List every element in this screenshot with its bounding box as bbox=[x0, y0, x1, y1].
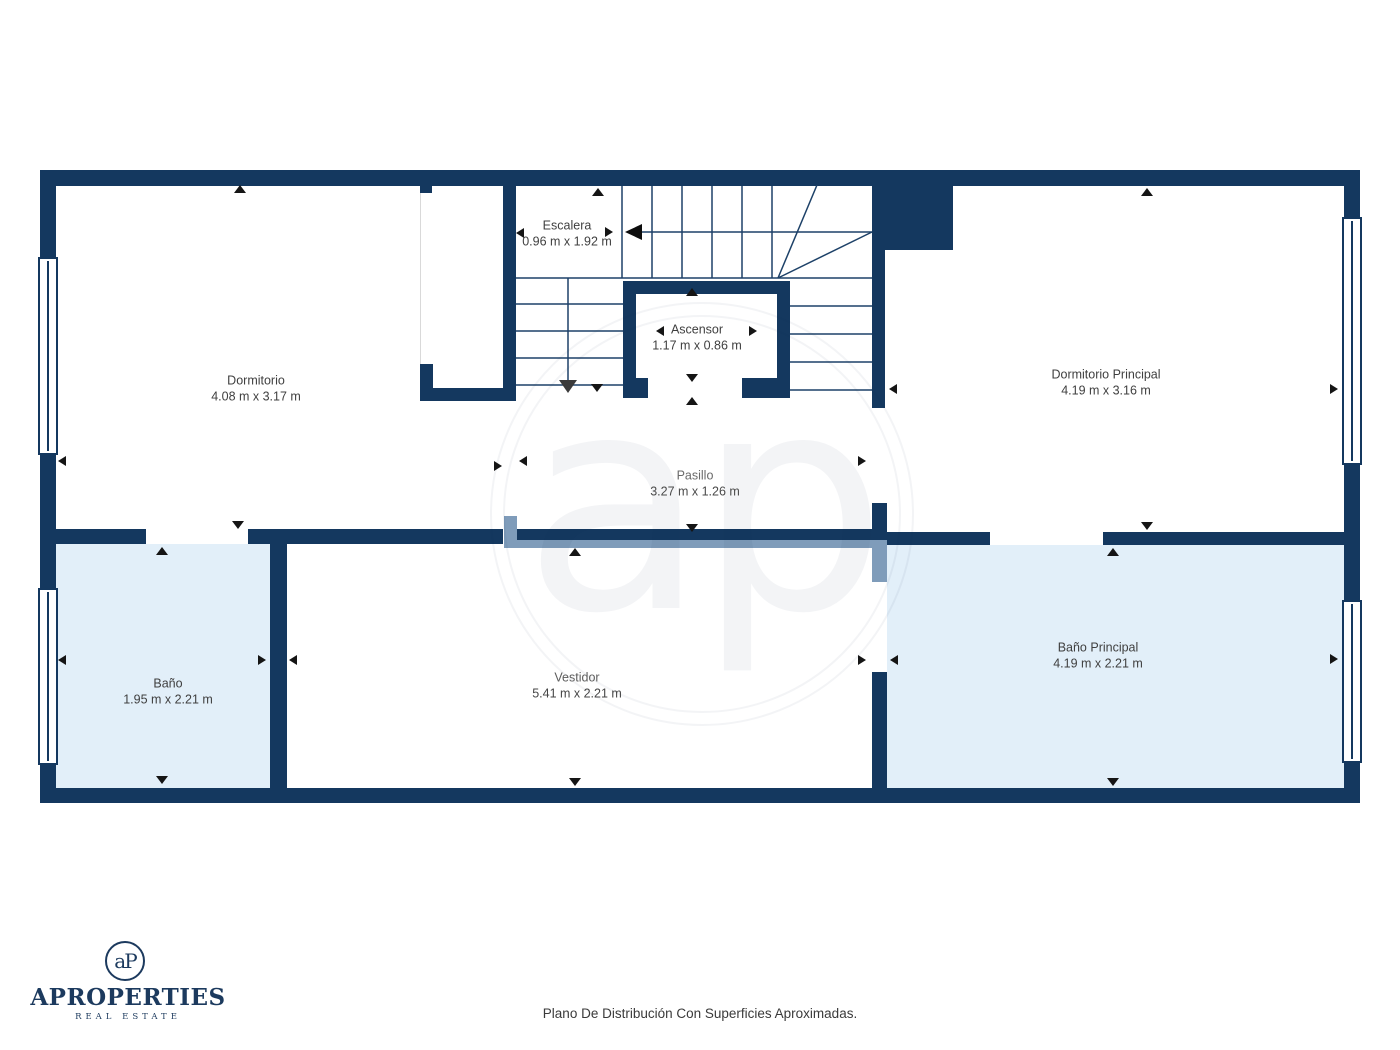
dimension-arrow bbox=[258, 655, 266, 665]
closet-edge-line bbox=[420, 193, 421, 364]
room-dims: 4.08 m x 3.17 m bbox=[211, 389, 301, 405]
wall-bathroom-right bbox=[270, 529, 287, 788]
wall-segment bbox=[420, 388, 516, 401]
room-name: Escalera bbox=[522, 219, 612, 235]
wall-pillar-block bbox=[872, 186, 953, 250]
room-label-pasillo: Pasillo 3.27 m x 1.26 m bbox=[650, 469, 740, 500]
window bbox=[1342, 600, 1362, 763]
wall-segment bbox=[40, 529, 146, 544]
room-label-bano-principal: Baño Principal 4.19 m x 2.21 m bbox=[1053, 641, 1143, 672]
dimension-arrow bbox=[1330, 654, 1338, 664]
dimension-arrow bbox=[1141, 522, 1153, 530]
dimension-arrow bbox=[516, 228, 524, 238]
dimension-arrow bbox=[234, 185, 246, 193]
dimension-arrow bbox=[1330, 384, 1338, 394]
dimension-arrow bbox=[656, 326, 664, 336]
room-label-dormitorio-principal: Dormitorio Principal 4.19 m x 3.16 m bbox=[1051, 368, 1160, 399]
room-name: Baño bbox=[123, 677, 213, 693]
bathroom-floor-fill bbox=[56, 544, 270, 788]
window bbox=[38, 257, 58, 455]
dimension-arrow bbox=[749, 326, 757, 336]
window bbox=[38, 588, 58, 765]
window bbox=[1342, 217, 1362, 465]
dimension-arrow bbox=[605, 227, 613, 237]
room-dims: 4.19 m x 2.21 m bbox=[1053, 656, 1143, 672]
room-label-escalera: Escalera 0.96 m x 1.92 m bbox=[522, 219, 612, 250]
room-name: Baño Principal bbox=[1053, 641, 1143, 657]
dimension-arrow bbox=[858, 655, 866, 665]
room-name: Pasillo bbox=[650, 469, 740, 485]
wall-segment bbox=[1103, 532, 1344, 545]
room-dims: 1.17 m x 0.86 m bbox=[652, 338, 742, 354]
dimension-arrow bbox=[156, 547, 168, 555]
wall-stub bbox=[420, 186, 432, 193]
dimension-arrow bbox=[890, 655, 898, 665]
room-dims: 4.19 m x 3.16 m bbox=[1051, 383, 1160, 399]
plan-caption: Plano De Distribución Con Superficies Ap… bbox=[0, 1006, 1400, 1021]
dimension-arrow bbox=[58, 655, 66, 665]
dimension-arrow bbox=[156, 776, 168, 784]
dimension-arrow bbox=[232, 521, 244, 529]
room-dims: 3.27 m x 1.26 m bbox=[650, 484, 740, 500]
dimension-arrow bbox=[569, 778, 581, 786]
dimension-arrow bbox=[858, 456, 866, 466]
agency-monogram: aP bbox=[114, 949, 135, 973]
agency-logo-icon: aP bbox=[105, 941, 145, 981]
room-name: Vestidor bbox=[532, 671, 622, 687]
dimension-arrow bbox=[519, 456, 527, 466]
dimension-arrow bbox=[58, 456, 66, 466]
room-dims: 0.96 m x 1.92 m bbox=[522, 234, 612, 250]
dimension-arrow bbox=[686, 374, 698, 382]
dimension-arrow bbox=[591, 384, 603, 392]
wall-segment bbox=[872, 672, 887, 788]
watermark-monogram: ap bbox=[523, 355, 877, 655]
room-name: Dormitorio bbox=[211, 374, 301, 390]
room-name: Ascensor bbox=[652, 323, 742, 339]
room-name: Dormitorio Principal bbox=[1051, 368, 1160, 384]
stair-direction-arrow bbox=[625, 224, 642, 240]
dimension-arrow bbox=[1141, 188, 1153, 196]
room-dims: 5.41 m x 2.21 m bbox=[532, 686, 622, 702]
dimension-arrow bbox=[289, 655, 297, 665]
dimension-arrow bbox=[1107, 778, 1119, 786]
dimension-arrow bbox=[686, 288, 698, 296]
dimension-arrow bbox=[686, 524, 698, 532]
dimension-arrow bbox=[569, 548, 581, 556]
room-label-vestidor: Vestidor 5.41 m x 2.21 m bbox=[532, 671, 622, 702]
room-label-bano: Baño 1.95 m x 2.21 m bbox=[123, 677, 213, 708]
room-label-ascensor: Ascensor 1.17 m x 0.86 m bbox=[652, 323, 742, 354]
room-dims: 1.95 m x 2.21 m bbox=[123, 692, 213, 708]
floor-plan-page: ap Dormitorio 4.08 m x 3.17 m Escalera 0… bbox=[0, 0, 1400, 1050]
dimension-arrow bbox=[889, 384, 897, 394]
dimension-arrow bbox=[494, 461, 502, 471]
wall-outer-bottom bbox=[40, 788, 1360, 803]
dimension-arrow bbox=[1107, 548, 1119, 556]
room-label-dormitorio: Dormitorio 4.08 m x 3.17 m bbox=[211, 374, 301, 405]
dimension-arrow bbox=[686, 397, 698, 405]
dimension-arrow bbox=[592, 188, 604, 196]
